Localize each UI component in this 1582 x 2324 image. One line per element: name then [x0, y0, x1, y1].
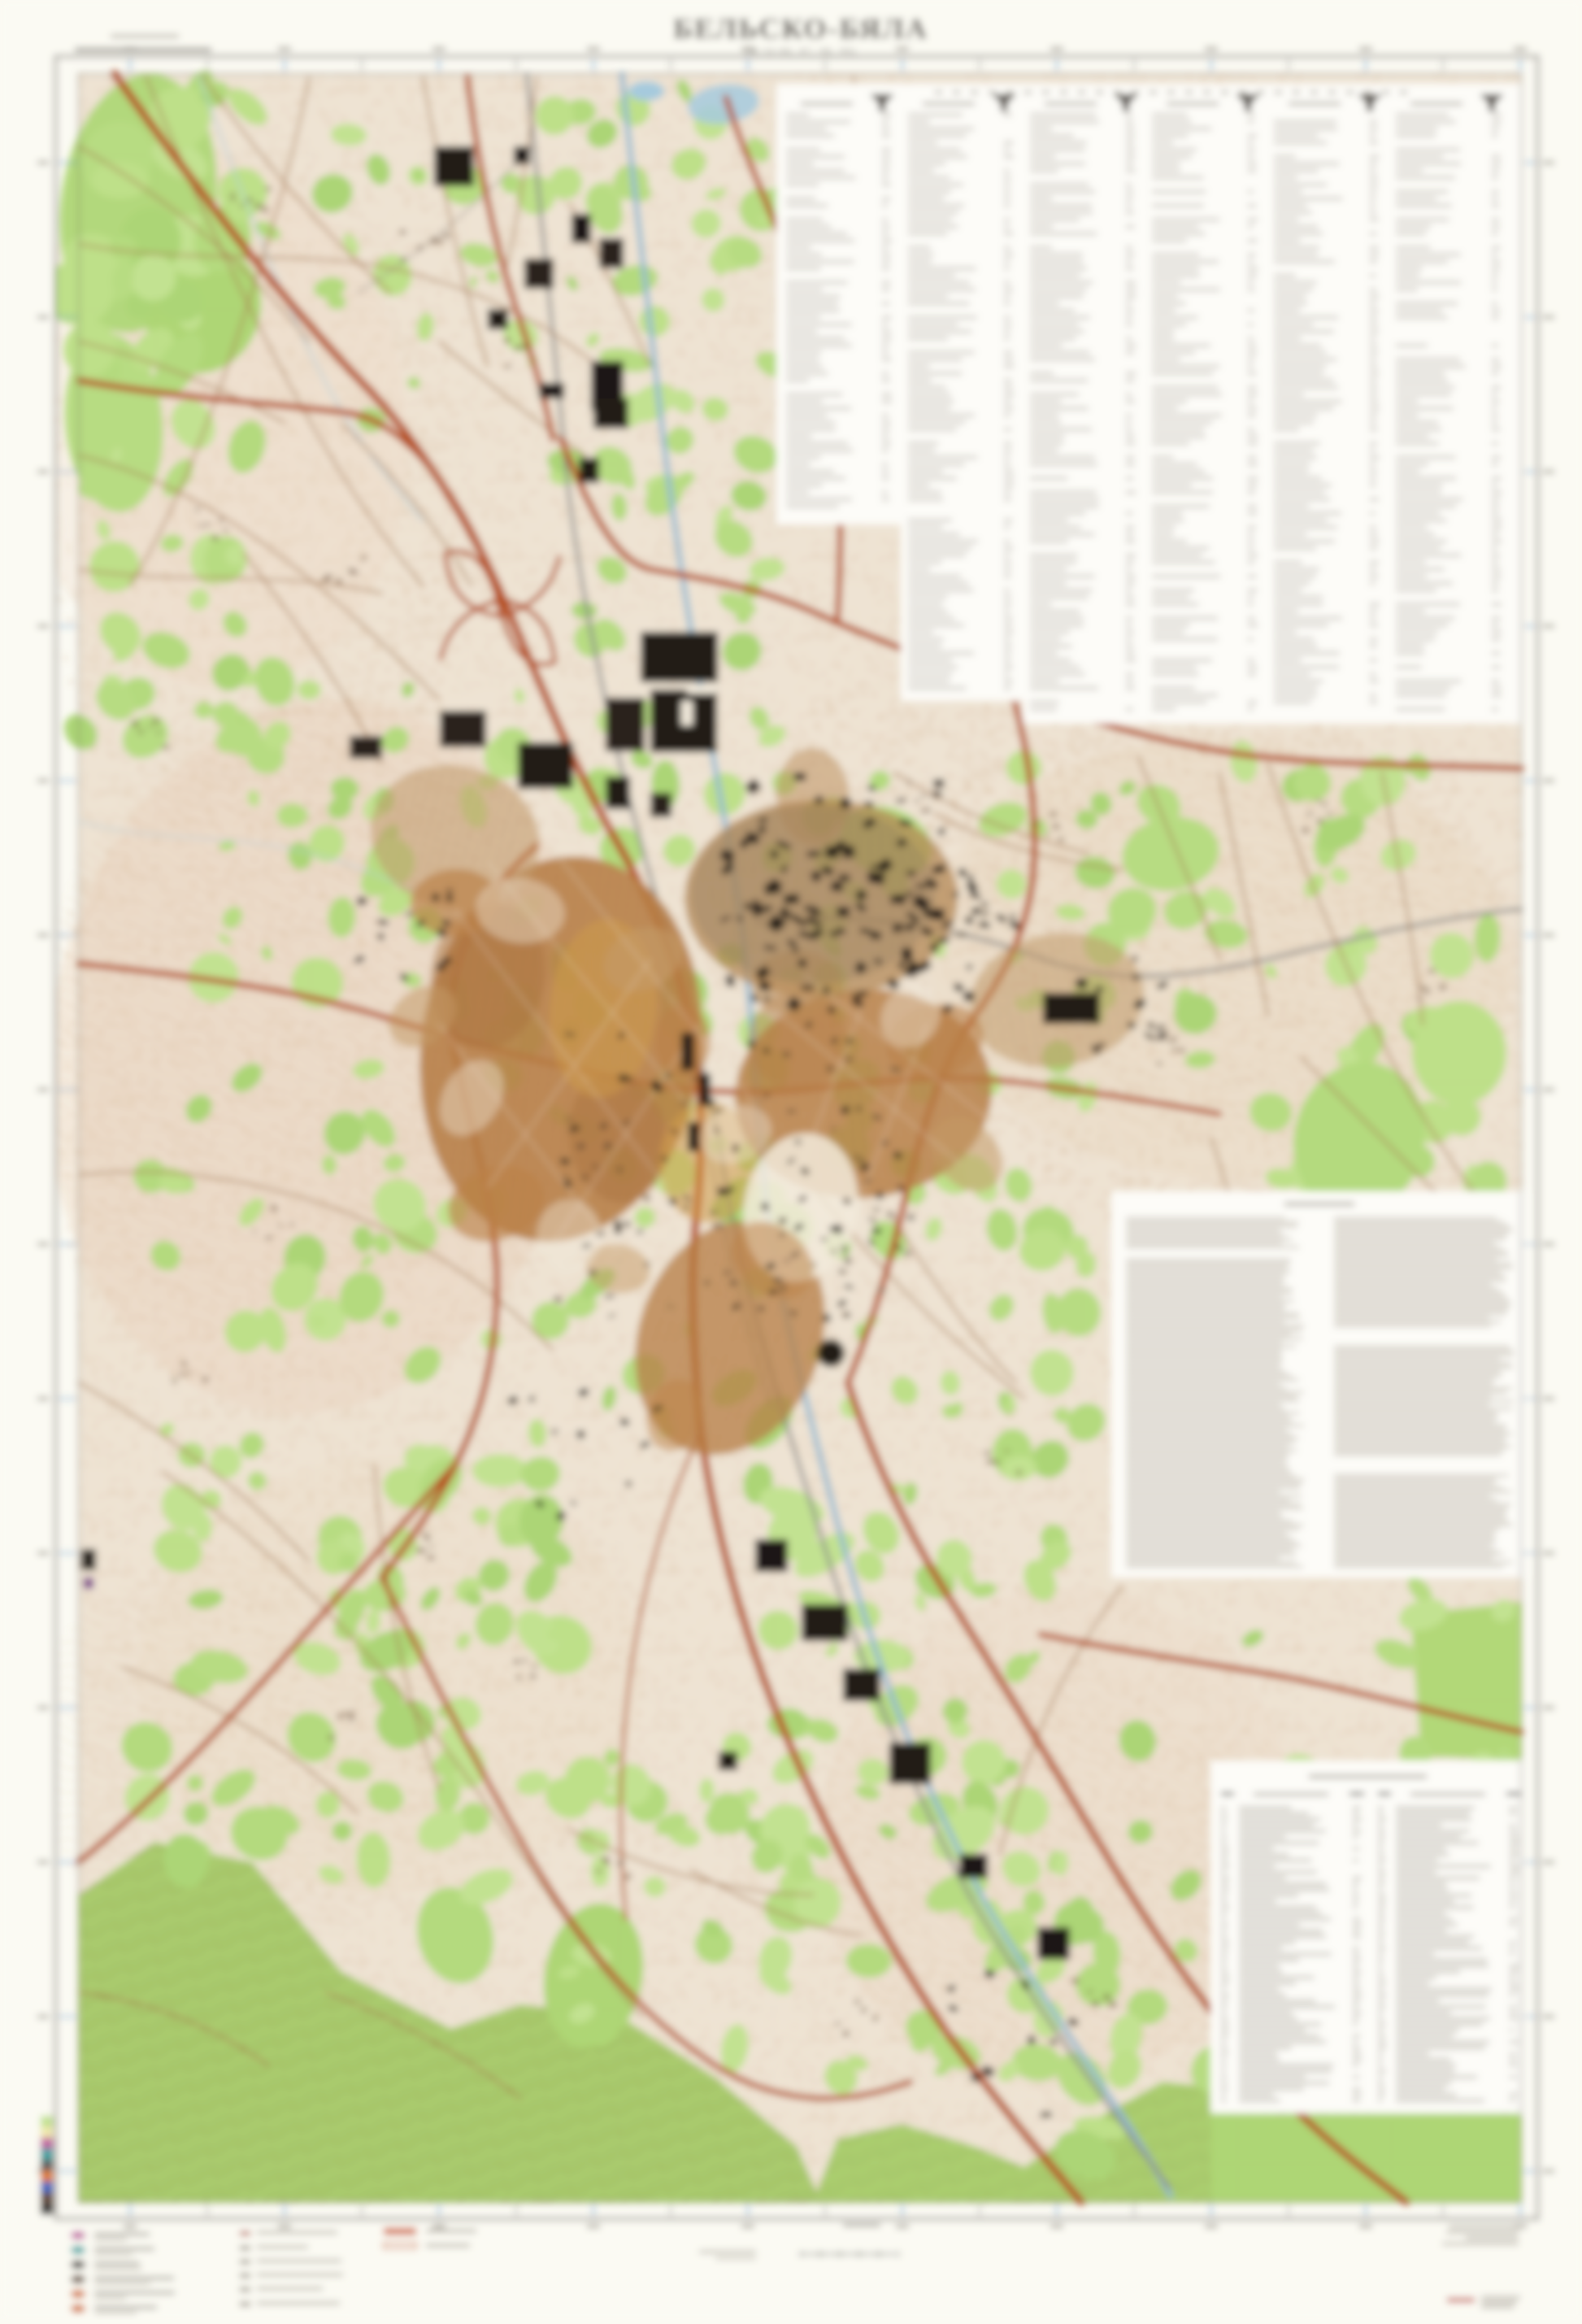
svg-text:БЕЛЬСКО-БЯЛА: БЕЛЬСКО-БЯЛА [673, 12, 928, 45]
svg-text:(M-34-86, 87, 98, 99): (M-34-86, 87, 98, 99) [745, 46, 857, 56]
